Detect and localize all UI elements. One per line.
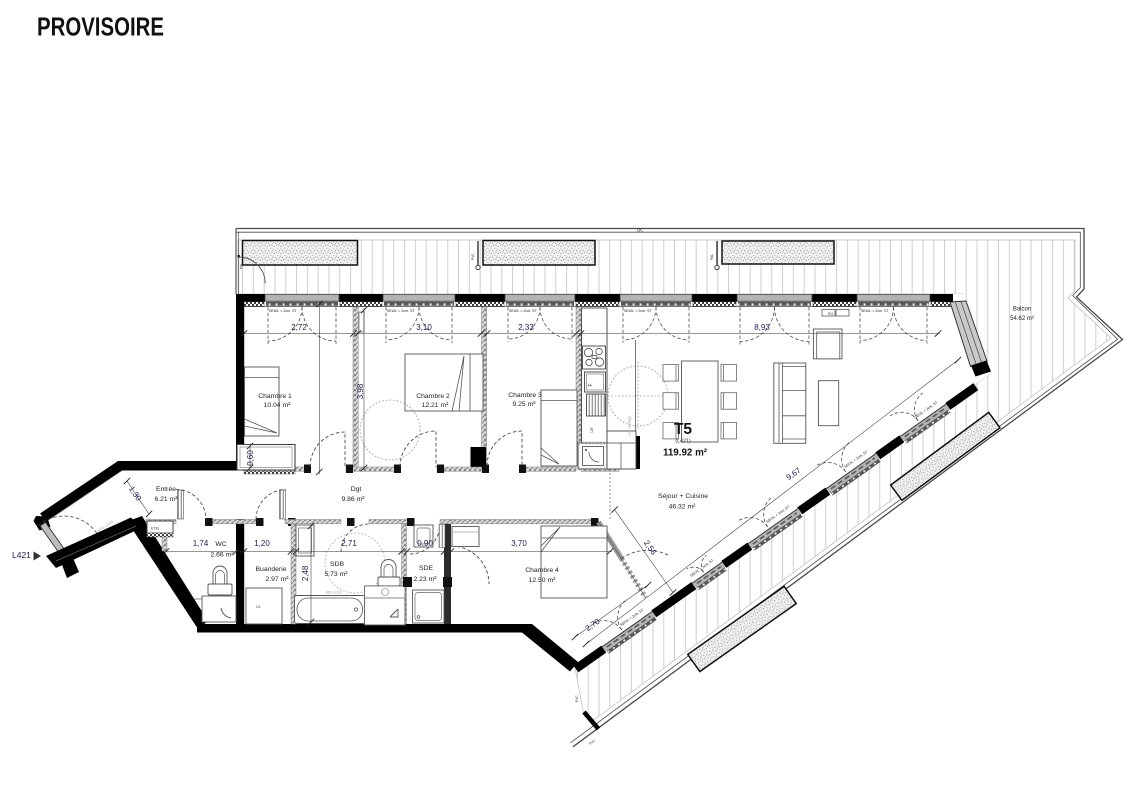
svg-text:Buanderie: Buanderie xyxy=(256,566,287,573)
svg-text:PVC: PVC xyxy=(575,695,579,702)
svg-text:0,90: 0,90 xyxy=(417,539,433,548)
svg-text:Chambre 3: Chambre 3 xyxy=(508,392,542,399)
svg-text:WC: WC xyxy=(215,541,226,548)
svg-text:Balcon: Balcon xyxy=(1013,307,1031,313)
svg-text:54.62 m²: 54.62 m² xyxy=(1010,316,1034,322)
svg-text:Séjour + Cuisine: Séjour + Cuisine xyxy=(658,493,708,500)
svg-text:T5: T5 xyxy=(674,421,692,438)
svg-text:46.32 m²: 46.32 m² xyxy=(669,504,697,511)
svg-text:OC: OC xyxy=(637,228,643,233)
svg-text:2,72: 2,72 xyxy=(291,323,307,332)
svg-text:SEUIL < 2cm, ST: SEUIL < 2cm, ST xyxy=(269,309,298,313)
svg-text:8,93: 8,93 xyxy=(754,323,770,332)
svg-text:SEUIL < 2cm, ST: SEUIL < 2cm, ST xyxy=(387,309,416,313)
svg-text:2.23 m²: 2.23 m² xyxy=(413,576,437,583)
svg-text:9.25 m²: 9.25 m² xyxy=(512,401,536,408)
svg-text:SEUIL < 2cm, ST: SEUIL < 2cm, ST xyxy=(624,309,653,313)
svg-text:UL: UL xyxy=(256,604,262,609)
svg-text:PROVISOIRE: PROVISOIRE xyxy=(37,12,164,41)
svg-text:3,70: 3,70 xyxy=(511,539,527,548)
svg-text:119.92 m²: 119.92 m² xyxy=(663,448,708,459)
svg-text:ETEL: ETEL xyxy=(151,527,160,531)
svg-text:(L421): (L421) xyxy=(675,439,691,445)
svg-text:SEUIL < 2cm, ST: SEUIL < 2cm, ST xyxy=(509,309,538,313)
svg-text:L421: L421 xyxy=(12,550,31,560)
svg-text:5.73 m²: 5.73 m² xyxy=(324,571,348,578)
svg-text:SDE: SDE xyxy=(419,565,433,572)
svg-text:2,48: 2,48 xyxy=(301,565,310,581)
svg-text:12.21 m²: 12.21 m² xyxy=(422,402,450,409)
svg-text:1,20: 1,20 xyxy=(254,539,270,548)
svg-text:2,33: 2,33 xyxy=(518,323,534,332)
svg-text:Chambre 2: Chambre 2 xyxy=(416,393,450,400)
svg-text:F: F xyxy=(588,383,594,386)
svg-text:2,71: 2,71 xyxy=(341,539,357,548)
svg-text:Lim. carrelage: Lim. carrelage xyxy=(628,416,632,436)
svg-text:Entrée: Entrée xyxy=(156,486,176,493)
svg-text:800 x 1300: 800 x 1300 xyxy=(326,591,342,595)
svg-text:Chambre 1: Chambre 1 xyxy=(258,393,292,400)
svg-text:10.04 m²: 10.04 m² xyxy=(264,402,292,409)
svg-text:2.66 m²: 2.66 m² xyxy=(210,552,234,559)
svg-text:LV: LV xyxy=(589,427,594,432)
svg-text:RO: RO xyxy=(828,312,833,316)
svg-text:3,98: 3,98 xyxy=(356,383,365,399)
svg-text:PAL: PAL xyxy=(240,263,244,269)
svg-text:6.21 m²: 6.21 m² xyxy=(154,496,178,503)
svg-text:2.97 m²: 2.97 m² xyxy=(265,576,289,583)
svg-text:9.86 m²: 9.86 m² xyxy=(341,496,365,503)
svg-text:1,74: 1,74 xyxy=(193,539,209,548)
svg-text:PAL: PAL xyxy=(710,254,714,260)
svg-text:0,60: 0,60 xyxy=(246,450,255,466)
svg-text:PVC: PVC xyxy=(471,253,475,260)
svg-text:Dgt: Dgt xyxy=(351,486,362,493)
svg-text:SEUIL < 2cm, ST: SEUIL < 2cm, ST xyxy=(861,309,890,313)
svg-text:3,10: 3,10 xyxy=(416,323,432,332)
svg-text:12.50 m²: 12.50 m² xyxy=(529,577,557,584)
svg-text:Chambre 4: Chambre 4 xyxy=(525,567,559,574)
svg-text:SDB: SDB xyxy=(330,561,344,568)
